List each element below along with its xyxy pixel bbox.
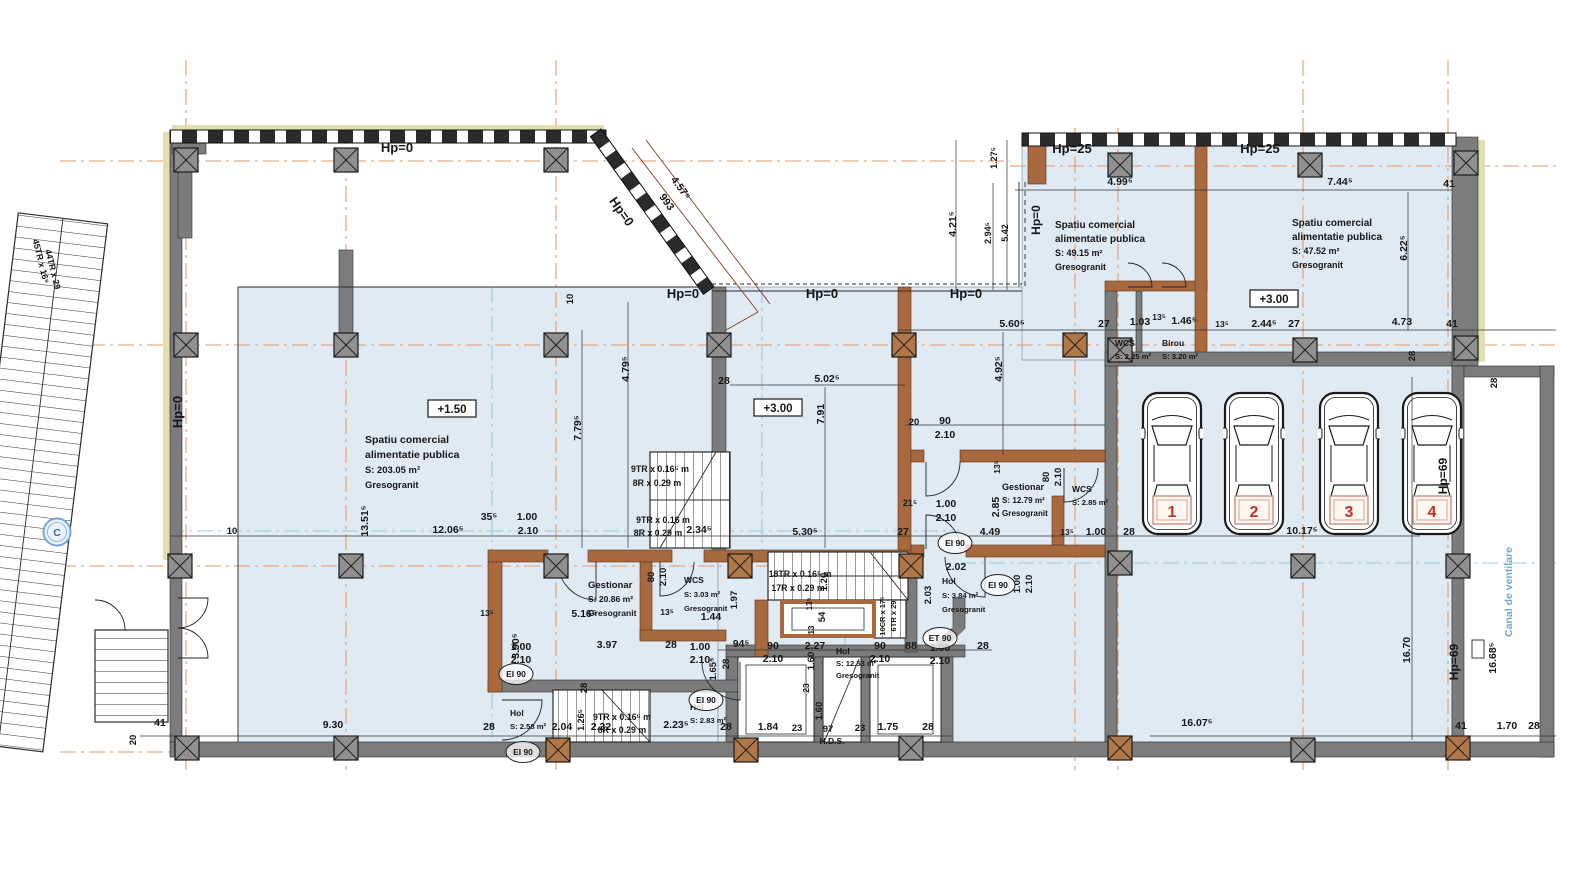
parking-number: 2 [1250,504,1259,521]
dim-label: 1.65⁵ [708,658,719,681]
dim-label: 16.07⁵ [1181,717,1212,729]
dim-label: 13⁵ [805,597,814,610]
grid-bubble-label: C [53,527,61,539]
dim-label: 2.23⁵ [663,719,688,731]
room-label: WCS [684,575,704,585]
level-label: +3.00 [1259,294,1288,306]
dim-label: 27 [1098,318,1110,330]
wall-segment [640,630,726,641]
column [1298,153,1322,177]
dim-label: 2.10 [930,655,951,667]
dim-label: 9TR x 0.16 m [636,515,690,525]
wall-segment [170,742,1554,757]
column [1108,153,1132,177]
column [1446,554,1470,578]
dim-label: 13⁵ [1060,527,1073,537]
fire-rating-label: EI 90 [506,669,526,679]
dim-label: 5.30⁵ [792,526,817,538]
dim-label: 2.44⁵ [1251,318,1276,330]
dim-label: 2.04 [552,721,573,733]
dim-label: 2.10 [935,429,956,441]
wall-segment [163,132,170,560]
dim-label: Hp=0 [1029,205,1043,235]
floorplan-canvas: 1234 Hp=0Hp=0Hp=0Hp=0Hp=0Hp=0Hp=0Hp=25Hp… [0,0,1588,888]
room-label: Gresogranit [1002,509,1048,518]
vent-access [1472,640,1484,658]
dim-label: 4.73 [1392,316,1413,328]
dim-label: Hp=0 [950,286,982,301]
dim-label: 80 [1041,472,1052,483]
column [707,333,731,357]
dim-label: 1.84 [758,721,779,733]
room-label: S: 49.15 m² [1055,248,1103,258]
column [334,333,358,357]
wall-segment [1052,496,1064,545]
room-label: alimentatie publica [1055,234,1145,245]
dim-label: 23 [792,723,803,734]
fire-rating-label: EI 90 [945,538,965,548]
dim-label: 2.10 [1053,468,1064,487]
dim-label: 16.68⁵ [1487,642,1499,673]
dim-label: 28 [1123,526,1135,538]
room-label: Spatiu comercial [365,434,449,446]
dim-label: 4.99⁵ [1107,176,1132,188]
door-swing [178,628,208,658]
dim-label: 7.79⁵ [572,415,584,440]
dim-label: 6.22⁵ [1398,235,1410,260]
room-label: S: 2.58 m² [510,722,547,731]
dim-label: 16.70 [1401,637,1413,663]
room-label: S: 203.05 m² [365,465,420,476]
dim-label: 28 [579,683,590,694]
dim-label: 35⁵ [481,511,498,523]
dim-label: 12.06⁵ [432,524,463,536]
stair-treads [95,630,168,722]
dim-label: 27 [897,526,909,538]
column [1454,336,1478,360]
dim-label: 2.10 [1024,575,1035,594]
column [1291,738,1315,762]
room-label: alimentatie publica [365,449,460,461]
diagonal-facade [590,129,714,294]
dim-label: 2.34⁵ [686,524,711,536]
column [728,554,752,578]
dim-label: 28 [721,659,732,670]
wall-segment [1195,146,1207,352]
column [892,333,916,357]
dim-label: 9TR x 0.16⁵ m [593,712,651,722]
dim-label: 1.60 [806,652,817,671]
dim-label: 1.20 [819,573,830,592]
room-label: S: 2.85 m² [1072,498,1109,507]
dim-label: 90 [939,415,951,427]
glazed-facade [590,129,714,294]
room-label: Gresogranit [684,604,728,613]
room-label: Hol [510,708,524,718]
column [168,554,192,578]
dim-label: 41 [1443,178,1455,190]
wall-segment [1105,352,1454,366]
dim-label: 13⁵ [660,607,673,617]
dim-label: 20 [909,417,920,428]
wall-segment [966,545,1105,557]
room-label: Hol [942,576,956,586]
dim-label: 2.27 [805,640,826,652]
dim-label: 4.92⁵ [993,356,1005,381]
wall-segment [1105,281,1207,291]
room-label: Gestionar [588,580,633,591]
dim-label: 2.10 [518,525,539,537]
dim-label: 2.10 [763,653,784,665]
door-swing [95,600,125,630]
dim-label: 13⁵ [992,460,1002,473]
dim-label: 28 [718,375,730,387]
column [899,554,923,578]
fire-rating-label: EI 90 [988,580,1008,590]
room-label: Gresogranit [1292,260,1343,270]
column [899,736,923,760]
dim-label: 7.91 [815,404,827,425]
dim-label: 4.79⁵ [620,356,632,381]
dim-label: 10.17⁵ [1286,525,1317,537]
dim-label: 23 [801,683,811,693]
column [1446,736,1470,760]
level-label: +1.50 [437,404,466,416]
column [544,148,568,172]
dim-label: 1.27⁵ [989,147,999,169]
door-swing [178,598,208,628]
dim-label: 54 [817,611,828,622]
wall-segment [588,550,672,562]
wall-segment [1478,140,1485,362]
dim-label: 13.51⁵ [359,505,371,536]
dim-label: 4.21⁵ [947,211,959,236]
dim-label: Hp=0 [606,194,637,229]
dim-label: 1.00 [511,641,532,653]
platform-box [782,602,874,636]
dim-label: Hp=0 [170,396,185,428]
dim-label: 5.42 [1000,224,1010,242]
room-label: Spatiu comercial [1292,218,1372,229]
dim-label: H.D.S. [819,736,844,746]
room-label: alimentatie publica [1292,232,1382,243]
dim-label: 13⁵ [1152,312,1165,322]
dim-label: 28 [1407,351,1418,362]
dim-label: 3.97 [597,639,618,651]
dim-label: 2.02 [946,561,967,573]
dim-label: 9TR x 0.16⁵ m [631,464,689,474]
dim-label: 8R x 0.29 m [633,478,682,488]
column [1063,333,1087,357]
dim-label: Hp=0 [381,140,413,155]
dim-label: Hp=0 [667,286,699,301]
dim-label: 1.60 [814,702,825,721]
room-label: S: 2.25 m² [1115,352,1152,361]
room-label: S: 20.86 m² [588,594,633,604]
dim-label: 88 [905,640,917,652]
dim-label: 28 [977,640,989,652]
dim-label: 41 [154,717,166,729]
room-label: Birou [1162,338,1184,348]
dim-label: 13⁵ [1215,319,1228,329]
room-label: S: 47.52 m² [1292,246,1340,256]
room-label: WCS [1072,484,1092,494]
room-label: S: 2.83 m² [690,716,727,725]
dim-label: 1.26⁵ [576,709,586,731]
room-label: Spatiu comercial [1055,220,1135,231]
column [174,148,198,172]
column [1293,338,1317,362]
wall-segment [339,250,353,342]
room-label: S: 3.20 m² [1162,352,1199,361]
column [334,736,358,760]
external-stair [0,213,108,752]
parking-number: 3 [1345,504,1354,521]
level-label: +3.00 [763,403,792,415]
dim-label: Hp=25 [1052,141,1091,156]
dim-label: 13 [807,625,816,634]
dim-label: 2.94⁵ [983,222,993,244]
column [175,736,199,760]
room-label: S: 3.84 m² [942,591,979,600]
fire-rating-label: ET 90 [929,633,952,643]
dim-label: 5.60⁵ [999,318,1024,330]
dim-label: 1.00 [517,511,538,523]
dim-label: 2.10 [658,568,669,587]
dim-label: 2.10 [936,512,957,524]
room-label: WCS [1115,338,1135,348]
dim-label: 41 [1446,318,1458,330]
dim-label: 1.00 [690,641,711,653]
column [546,738,570,762]
dim-label: 1.46⁵ [1171,315,1196,327]
column [339,554,363,578]
room-label: S: 3.03 m² [684,590,721,599]
room-label: S: 12.79 m² [1002,496,1045,505]
dim-label: 1.03 [1130,316,1151,328]
dim-label: 28 [665,639,677,651]
dim-label: 27 [1288,318,1300,330]
dim-label: 80 [646,572,657,583]
dim-label: 1.00 [936,498,957,510]
column [544,554,568,578]
dim-label: 1.70 [1497,720,1518,732]
dim-label: 23 [855,723,866,734]
column [1291,554,1315,578]
dim-label: 97 [823,724,834,735]
dim-label: Hp=0 [806,286,838,301]
dim-label: Hp=69 [1436,458,1450,495]
dim-label: 90 [767,640,779,652]
room-label: Gresogranit [588,608,637,618]
wall-segment [911,450,924,462]
room-label: Gresogranit [365,480,419,491]
room-label: Gresogranit [836,671,880,680]
wall-segment [1540,366,1554,757]
dim-label: 13⁵ [480,608,493,618]
parking-number: 1 [1168,504,1177,521]
column [1454,151,1478,175]
dim-label: 9.30 [323,719,344,731]
fire-rating-label: EI 90 [696,695,716,705]
dim-label: Canal de ventilare [1503,547,1515,637]
dim-label: 1.97 [729,591,740,610]
dim-label: 90 [874,640,886,652]
dim-label: 10CR x 17⁵ [878,596,887,636]
column [174,333,198,357]
room-label: S: 12.53 m² [836,659,877,668]
dim-label: 5.02⁵ [814,373,839,385]
dim-label: 10 [227,526,238,537]
column [1108,551,1132,575]
dim-label: 2.03 [923,586,934,605]
room-label: Gestionar [1002,482,1045,492]
dim-label: 28 [1489,378,1500,389]
dim-label: 28 [922,721,934,733]
fire-rating-label: EI 90 [513,747,533,757]
floor-plan: 1234 Hp=0Hp=0Hp=0Hp=0Hp=0Hp=0Hp=0Hp=25Hp… [0,0,1588,888]
column [1108,736,1132,760]
dim-label: 1.00 [1086,526,1107,538]
dim-label: Hp=69 [1447,644,1461,681]
dim-label: 10 [565,294,576,305]
wall-segment [488,550,548,562]
dim-label: 6TR x 29 [889,601,898,632]
column [734,738,758,762]
parking-number: 4 [1428,504,1437,521]
room-label: Hol [836,646,850,656]
dim-label: 1.75 [878,721,899,733]
column [544,333,568,357]
dim-label: 2.85 [990,497,1002,518]
dim-label: Hp=25 [1240,141,1279,156]
dim-label: 17R x 0.29 m [771,583,824,593]
dim-label: 28 [1528,720,1540,732]
dim-label: 20 [128,735,139,746]
room-label: Gresogranit [1055,262,1106,272]
dim-label: 21⁵ [903,498,917,508]
wall-segment [960,450,1105,462]
dim-label: 94⁵ [733,638,750,650]
dim-label: 8R x 0.29 m [598,725,647,735]
dim-label: 41 [1455,720,1467,732]
dim-label: 4.49 [980,526,1001,538]
dim-label: 8R x 0.29 m [634,528,683,538]
wall-segment [941,657,953,742]
column [334,148,358,172]
dim-label: 7.44⁵ [1327,176,1352,188]
dim-label: 28 [483,721,495,733]
room-label: Gresogranit [942,605,986,614]
